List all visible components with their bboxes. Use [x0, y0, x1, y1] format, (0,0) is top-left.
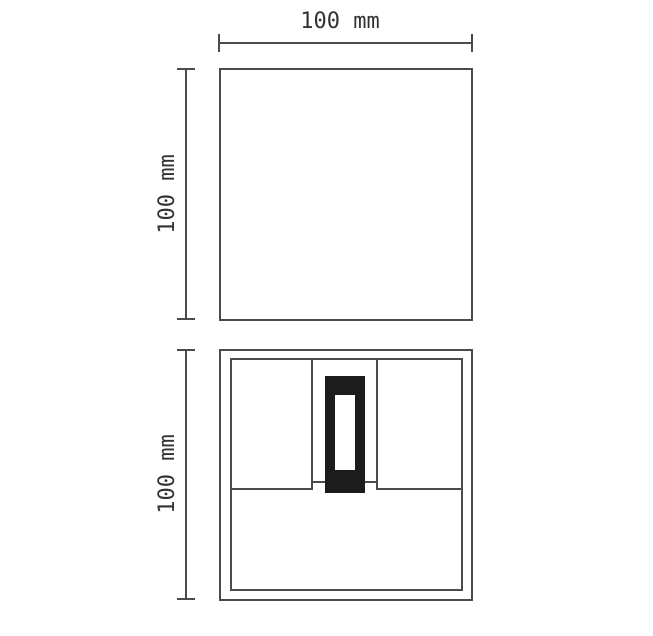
dimension-label-height-front-view: 100 mm [156, 414, 180, 534]
module-light-aperture [335, 395, 355, 470]
dimension-line-vertical [185, 69, 187, 320]
dimension-end-tick-top [177, 349, 195, 351]
dimension-end-tick-top [177, 68, 195, 70]
dimension-line-horizontal [219, 42, 473, 44]
right-panel-bottom-line [376, 488, 463, 490]
dimension-end-tick-bottom [177, 318, 195, 320]
right-panel-divider-vertical [376, 358, 378, 490]
left-panel-bottom-line [230, 488, 313, 490]
center-black-module [325, 376, 365, 493]
dimension-end-tick-bottom [177, 598, 195, 600]
technical-drawing: 100 mm 100 mm 100 mm [0, 0, 653, 636]
left-panel-divider-vertical [311, 358, 313, 490]
dimension-line-vertical [185, 350, 187, 600]
dimension-label-width: 100 mm [280, 10, 400, 34]
dimension-label-height-top-view: 100 mm [156, 134, 180, 254]
dimension-end-tick-right [471, 34, 473, 52]
dimension-end-tick-left [218, 34, 220, 52]
top-view-square [219, 68, 473, 321]
module-connector-tick-left [311, 481, 325, 483]
module-connector-tick-right [365, 481, 378, 483]
